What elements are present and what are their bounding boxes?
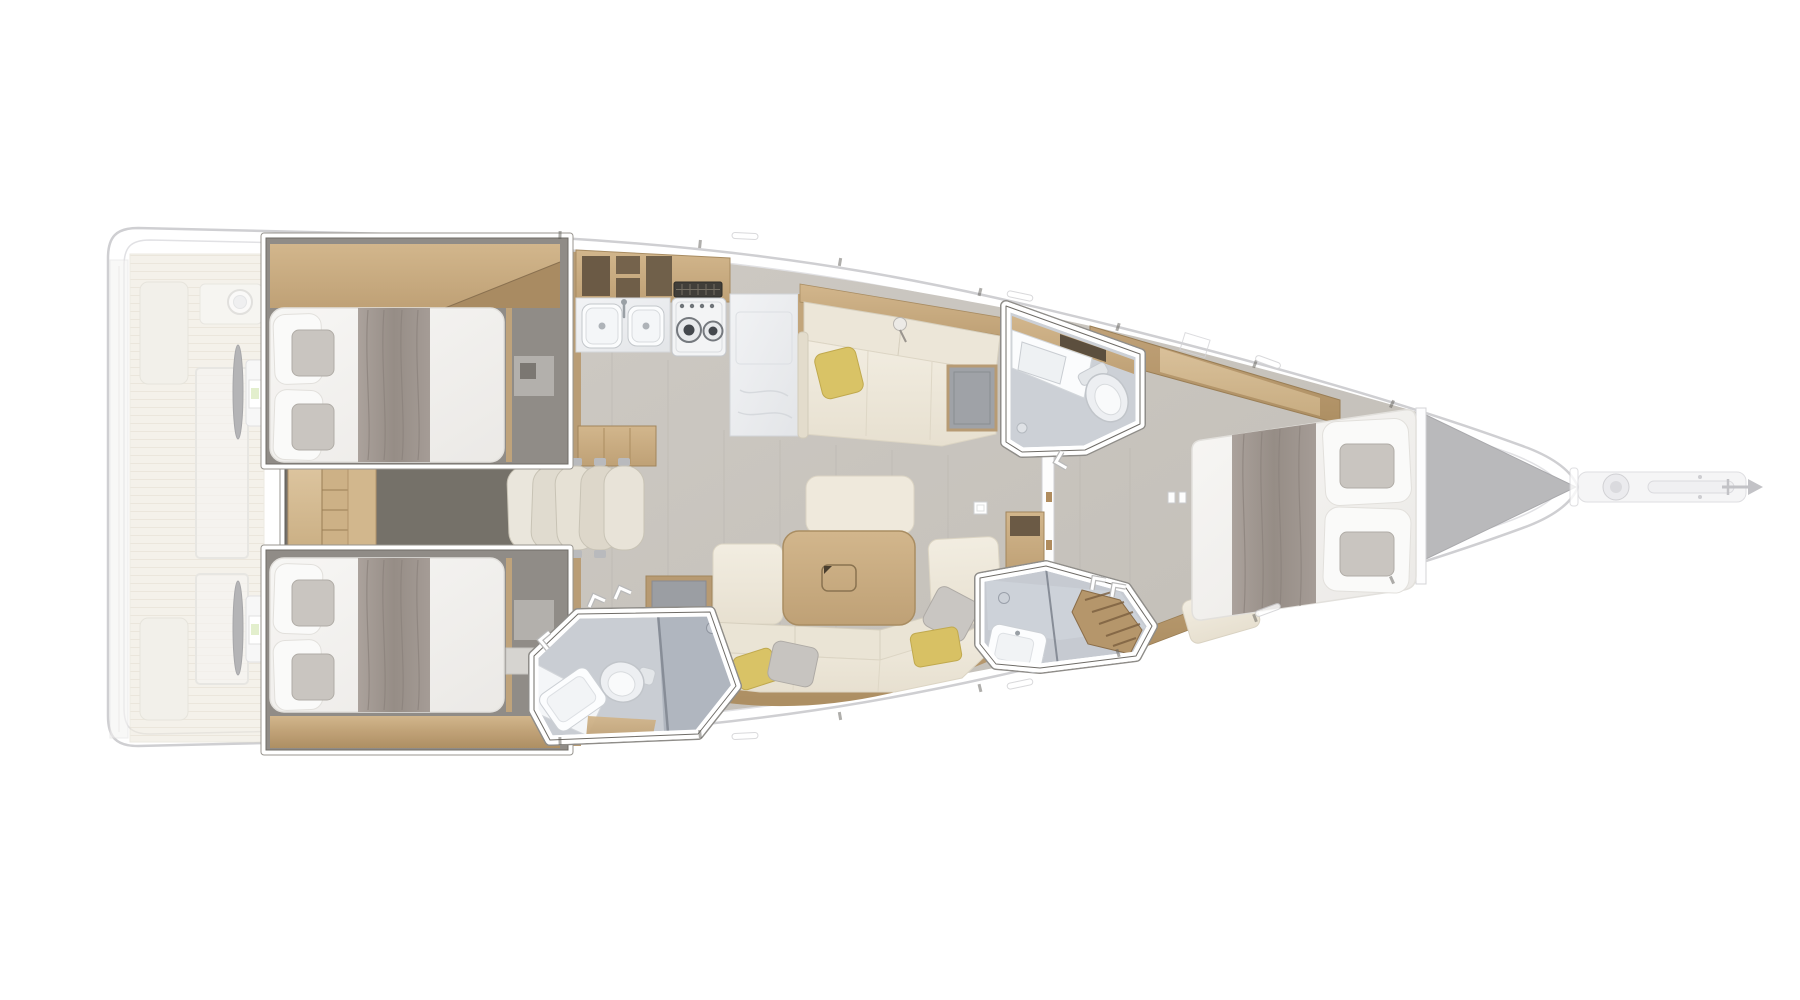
forepeak-locker: [1424, 414, 1576, 560]
pillow-accent-2: [292, 404, 334, 450]
pillow-accent-1: [292, 330, 334, 376]
sink-drain: [599, 323, 606, 330]
helm-wheel-starboard: [233, 581, 243, 675]
stem-fitting: [1570, 468, 1578, 506]
open-cubby: [646, 256, 672, 296]
bench-backrest-island: [806, 476, 914, 534]
open-cubby: [616, 278, 640, 298]
cabinet-open-shelf: [1010, 516, 1040, 536]
pillow-accent-2: [292, 654, 334, 700]
stowed-chairs: [507, 458, 644, 558]
settee-armrest: [798, 332, 808, 438]
companionway-steps: [578, 426, 656, 466]
wardrobe-shelf-column: [322, 469, 348, 547]
burner-center: [684, 325, 695, 336]
head-forward-port: [980, 566, 1152, 674]
galley-island: [730, 294, 798, 436]
floor-latch: [1179, 492, 1186, 503]
open-cubby: [582, 256, 610, 296]
stern-bench-starboard: [140, 618, 188, 720]
owner-pillow-accent-1: [1340, 444, 1394, 488]
foot-wood-band-1: [270, 716, 560, 732]
chartplotter-map-port: [251, 388, 259, 399]
anchor-fluke: [1748, 479, 1763, 495]
foot-wood-band-2: [270, 732, 560, 748]
bow-gear: [1570, 468, 1763, 506]
berth-foot-trim: [506, 558, 512, 712]
door-jamb: [1046, 540, 1052, 550]
platform-bolt: [1698, 475, 1702, 479]
floor-drain: [1017, 423, 1027, 433]
aft-cabin-port: [261, 233, 573, 469]
door-jamb: [1046, 492, 1052, 502]
head-aft: [534, 612, 736, 740]
burner-center: [709, 327, 718, 336]
wardrobe-door: [348, 469, 376, 547]
vent-square: [974, 502, 987, 514]
helm-wheel-port: [233, 345, 243, 439]
open-cubby: [616, 256, 640, 274]
floor-plan-canvas: [0, 0, 1800, 1000]
cockpit: [110, 254, 264, 742]
aft-cabin-starboard: [261, 545, 573, 755]
berth-foot-trim: [506, 308, 512, 462]
forward-bulkhead: [1416, 408, 1426, 584]
anchor-roller-slot: [1648, 481, 1734, 493]
chaise-left: [713, 544, 783, 624]
cabin-hatch: [520, 363, 536, 379]
windlass-gypsy: [1610, 481, 1622, 493]
yacht-floor-plan: [0, 0, 1800, 1000]
stern-bench-port: [140, 282, 188, 384]
faucet-base: [621, 299, 627, 305]
cockpit-sink-drain: [234, 296, 247, 309]
reading-light-icon: [894, 318, 907, 331]
sink-drain: [643, 323, 650, 330]
chart-table-mat: [948, 366, 996, 430]
chartplotter-map-starboard: [251, 624, 259, 635]
pillow-accent-1: [292, 580, 334, 626]
owner-pillow-accent-2: [1340, 532, 1394, 576]
shower-drain: [999, 593, 1010, 604]
floor-latch: [1168, 492, 1175, 503]
folding-chair: [604, 466, 644, 550]
dining-table: [783, 531, 915, 625]
platform-bolt: [1698, 495, 1702, 499]
